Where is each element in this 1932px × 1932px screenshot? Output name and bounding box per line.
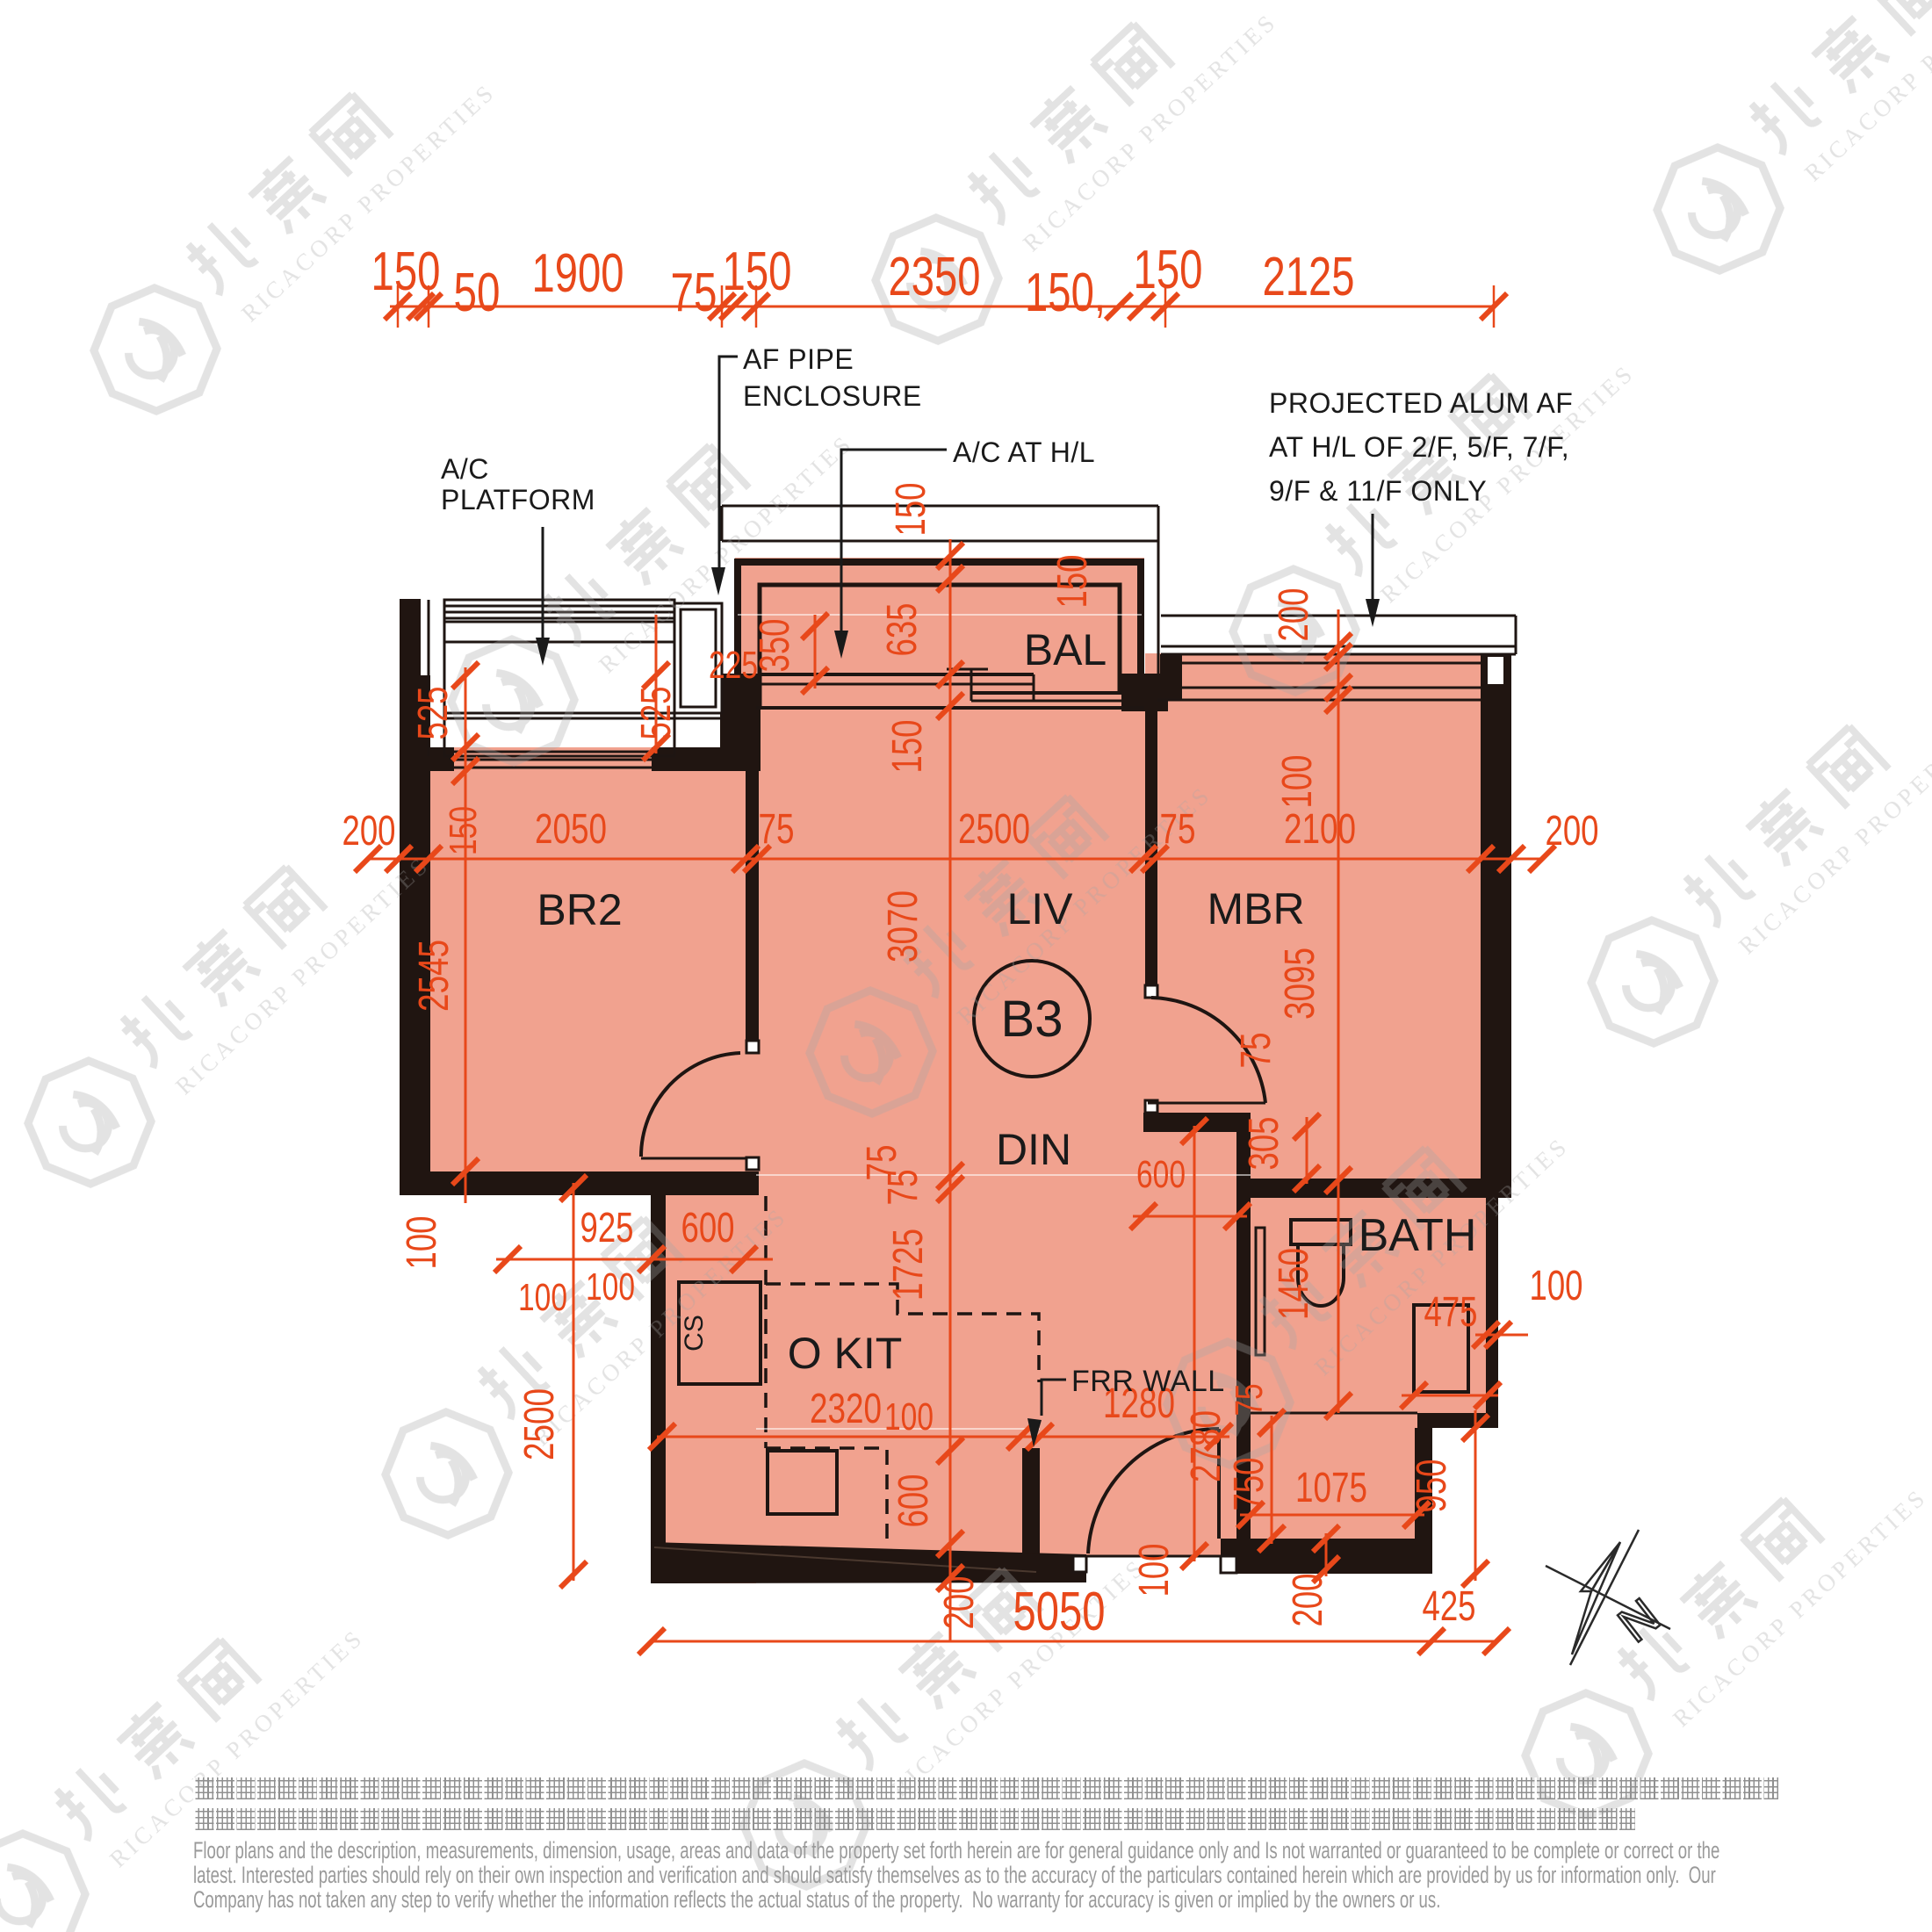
svg-text:75: 75 (759, 806, 795, 853)
svg-text:525: 525 (410, 687, 457, 740)
svg-text:600: 600 (681, 1205, 735, 1251)
svg-text:635: 635 (879, 603, 926, 657)
svg-text:CS: CS (680, 1315, 709, 1352)
svg-text:305: 305 (1241, 1117, 1287, 1171)
svg-text:100: 100 (1131, 1544, 1178, 1597)
svg-text:RICACORP PROPERTIES: RICACORP PROPERTIES (1734, 710, 1932, 960)
svg-text:A/C AT H/L: A/C AT H/L (953, 436, 1095, 468)
svg-text:600: 600 (1136, 1153, 1186, 1196)
svg-text:2350: 2350 (889, 247, 981, 307)
svg-text:1450: 1450 (1271, 1248, 1317, 1320)
svg-text:75: 75 (1233, 1033, 1280, 1069)
svg-text:3070: 3070 (880, 890, 926, 962)
svg-text:1900: 1900 (532, 243, 624, 304)
svg-text:350: 350 (752, 619, 798, 673)
svg-text:75: 75 (671, 263, 717, 323)
svg-text:950: 950 (1409, 1460, 1455, 1513)
svg-text:425: 425 (1423, 1583, 1476, 1630)
svg-text:5050: 5050 (1013, 1582, 1106, 1642)
svg-text:3095: 3095 (1277, 948, 1323, 1020)
svg-text:AT H/L OF 2/F, 5/F, 7/F,: AT H/L OF 2/F, 5/F, 7/F, (1269, 431, 1569, 463)
svg-text:FRR WALL: FRR WALL (1071, 1365, 1225, 1398)
svg-text:75: 75 (880, 1170, 926, 1206)
svg-text:150: 150 (371, 241, 441, 302)
svg-text:BAL: BAL (1024, 625, 1107, 674)
svg-text:100: 100 (1530, 1263, 1583, 1309)
svg-text:1075: 1075 (1295, 1465, 1367, 1511)
svg-text:2100: 2100 (1284, 806, 1356, 853)
svg-text:9/F & 11/F ONLY: 9/F & 11/F ONLY (1269, 475, 1487, 507)
svg-text:2545: 2545 (411, 940, 458, 1012)
svg-text:2500: 2500 (958, 806, 1030, 853)
svg-text:AF PIPE: AF PIPE (743, 343, 854, 375)
svg-text:150,: 150, (1025, 263, 1106, 323)
svg-text:O KIT: O KIT (788, 1329, 903, 1378)
svg-text:2320: 2320 (810, 1386, 882, 1432)
svg-text:A/C: A/C (441, 453, 489, 485)
svg-text:2050: 2050 (535, 806, 607, 853)
svg-text:200: 200 (342, 808, 396, 854)
svg-text:150: 150 (884, 720, 931, 774)
svg-text:50: 50 (454, 263, 501, 323)
svg-text:ENCLOSURE: ENCLOSURE (743, 380, 922, 412)
svg-text:200: 200 (1546, 808, 1599, 854)
svg-text:B3: B3 (1001, 991, 1063, 1048)
svg-text:N: N (1608, 1587, 1670, 1653)
svg-text:525: 525 (633, 687, 680, 740)
svg-text:PLATFORM: PLATFORM (441, 484, 595, 515)
svg-text:200: 200 (936, 1576, 983, 1630)
svg-text:150: 150 (1134, 240, 1203, 300)
svg-text:75: 75 (1228, 1384, 1271, 1417)
svg-text:200: 200 (1285, 1574, 1331, 1627)
svg-text:2500: 2500 (516, 1388, 563, 1460)
svg-text:200: 200 (1271, 588, 1317, 642)
svg-text:600: 600 (890, 1474, 937, 1528)
svg-text:DIN: DIN (996, 1125, 1071, 1174)
svg-text:MBR: MBR (1207, 884, 1304, 934)
svg-text:150: 150 (442, 806, 485, 855)
svg-text:100: 100 (884, 1395, 934, 1438)
svg-text:2125: 2125 (1263, 247, 1355, 307)
svg-text:100: 100 (518, 1276, 567, 1319)
svg-text:PROJECTED ALUM AF: PROJECTED ALUM AF (1269, 387, 1573, 419)
svg-text:475: 475 (1424, 1289, 1478, 1336)
svg-text:150: 150 (888, 483, 934, 537)
svg-text:225: 225 (709, 644, 758, 687)
svg-text:75: 75 (1160, 806, 1196, 853)
svg-text:100: 100 (586, 1265, 635, 1308)
svg-text:100: 100 (1274, 755, 1321, 809)
svg-text:BATH: BATH (1359, 1210, 1477, 1261)
svg-text:LIV: LIV (1006, 884, 1073, 934)
svg-text:750: 750 (1226, 1458, 1272, 1511)
svg-text:BR2: BR2 (537, 885, 622, 934)
svg-text:150: 150 (723, 241, 792, 302)
svg-text:1725: 1725 (885, 1229, 932, 1301)
svg-text:100: 100 (399, 1216, 445, 1270)
svg-text:925: 925 (580, 1205, 634, 1251)
svg-text:150: 150 (1049, 555, 1096, 609)
